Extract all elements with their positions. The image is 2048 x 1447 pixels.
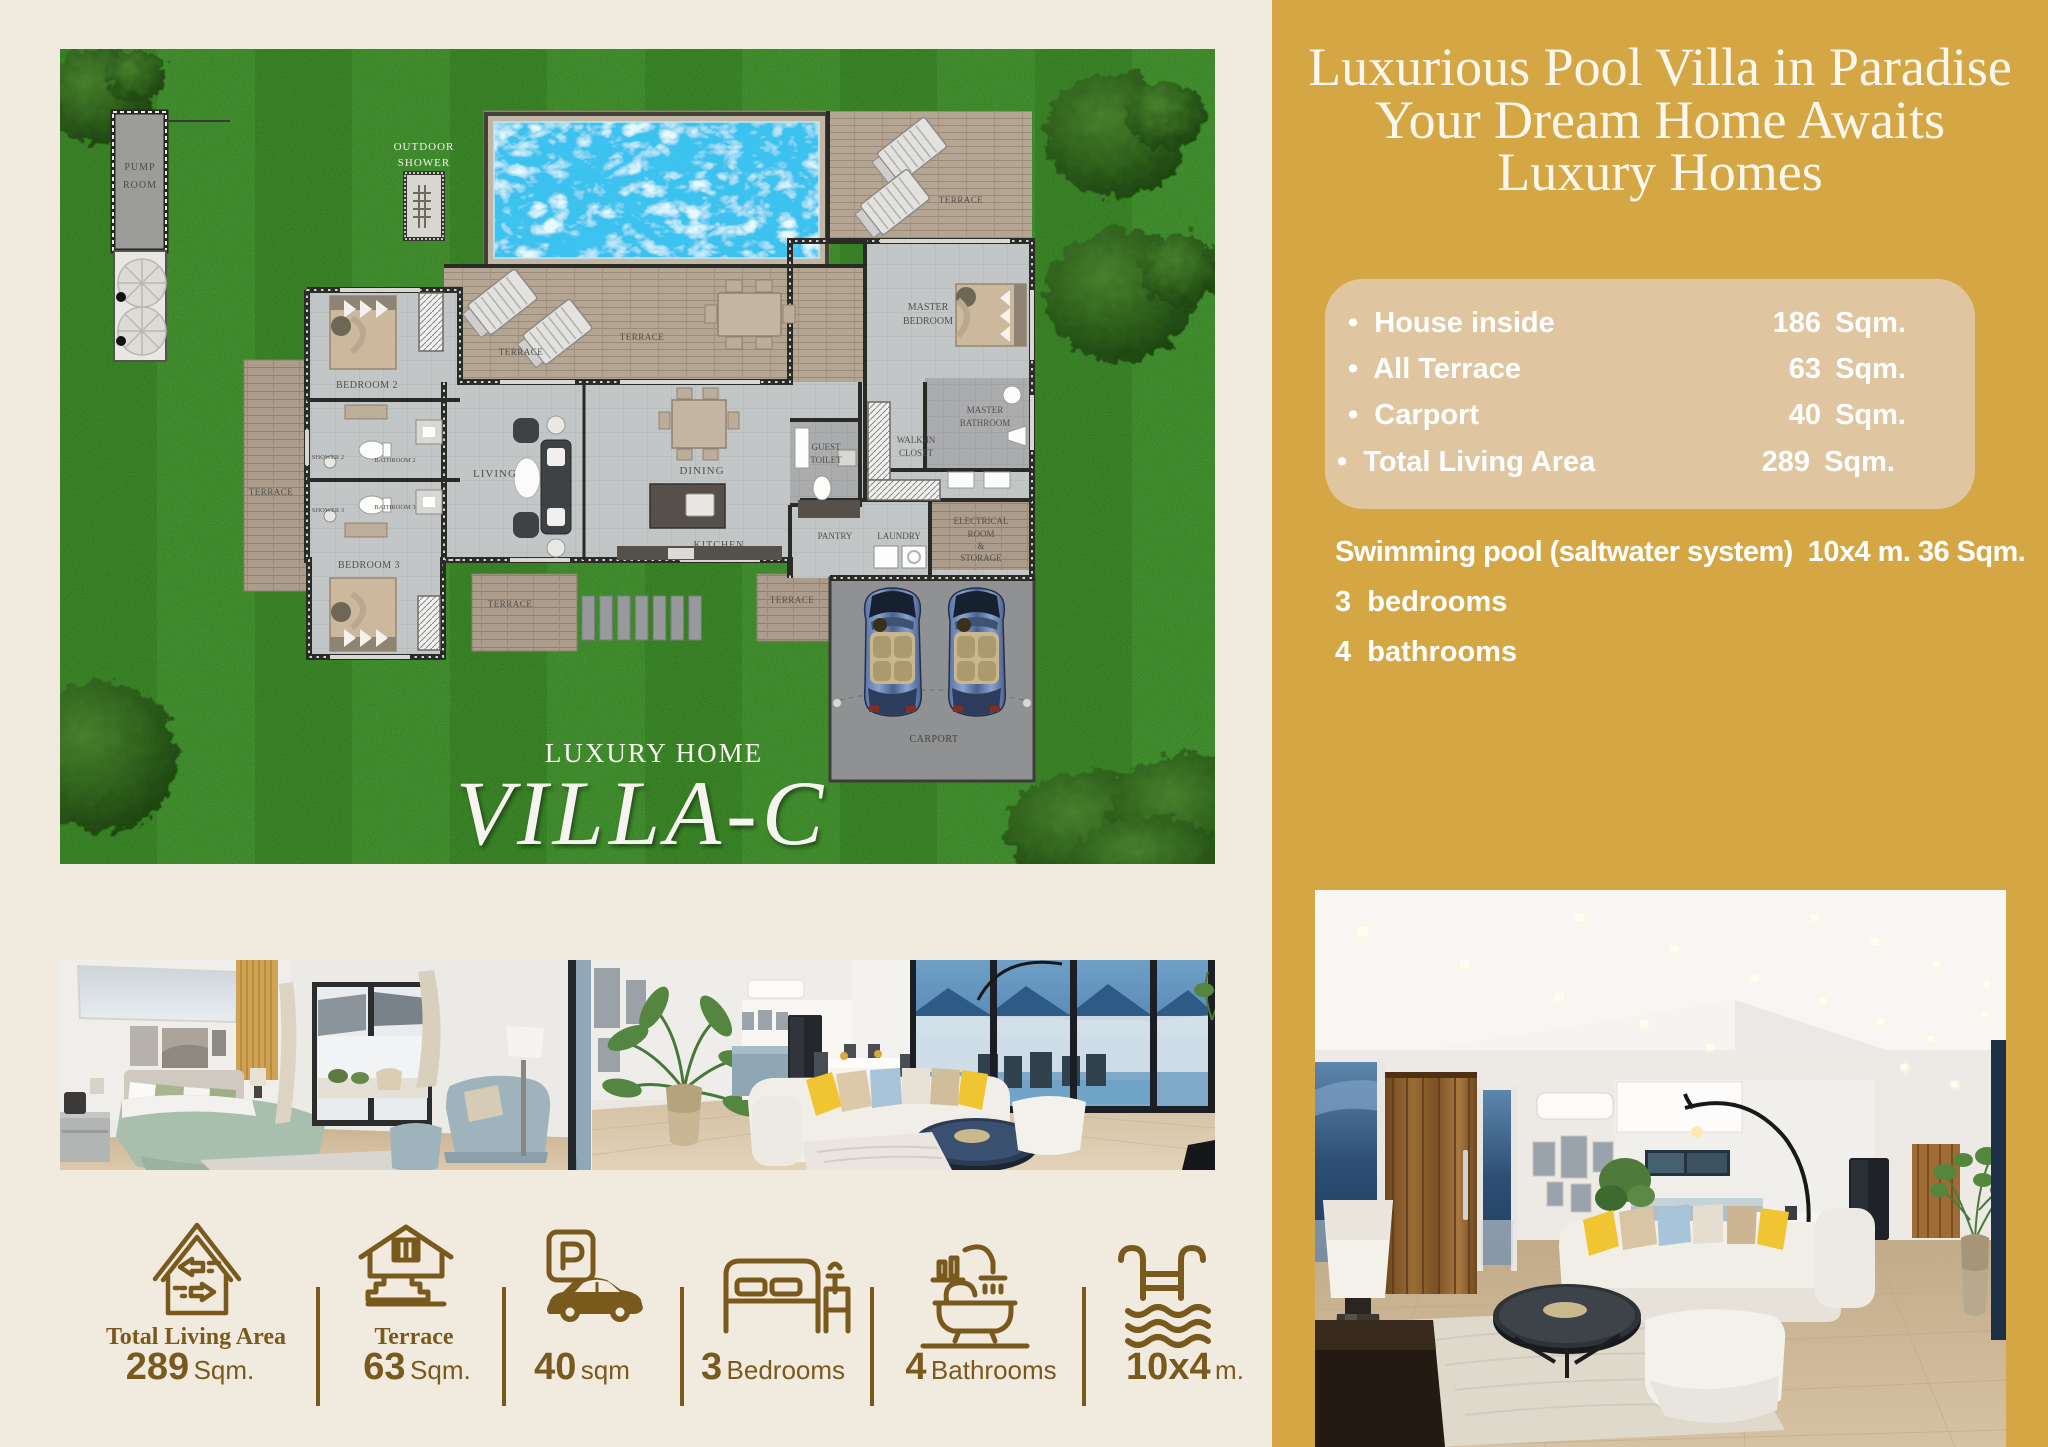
svg-text:TERRACE: TERRACE: [499, 347, 544, 357]
svg-text:KITCHEN: KITCHEN: [694, 540, 745, 551]
svg-text:BATHROOM: BATHROOM: [960, 418, 1011, 428]
svg-text:LAUNDRY: LAUNDRY: [877, 531, 921, 541]
svg-text:ELECTRICAL: ELECTRICAL: [954, 516, 1009, 526]
svg-text:ROOM: ROOM: [967, 529, 994, 539]
svg-text:DINING: DINING: [679, 465, 724, 477]
svg-text:VILLA-C: VILLA-C: [456, 762, 828, 864]
svg-text:TERRACE: TERRACE: [770, 595, 815, 605]
svg-text:STORAGE: STORAGE: [960, 553, 1002, 563]
svg-text:BEDROOM: BEDROOM: [903, 316, 953, 327]
svg-text:WALK-IN: WALK-IN: [897, 435, 936, 445]
svg-text:OUTDOOR: OUTDOOR: [394, 141, 455, 153]
svg-text:TOILET: TOILET: [810, 455, 842, 465]
svg-text:SHOWER 2: SHOWER 2: [312, 454, 344, 461]
svg-text:CARPORT: CARPORT: [909, 734, 958, 745]
svg-text:PUMP: PUMP: [124, 162, 155, 173]
svg-text:GUEST: GUEST: [812, 442, 842, 452]
svg-text:BEDROOM 2: BEDROOM 2: [336, 380, 398, 391]
svg-text:TERRACE: TERRACE: [939, 195, 984, 205]
svg-text:LIVING: LIVING: [473, 468, 517, 480]
svg-text:SHOWER 3: SHOWER 3: [312, 507, 344, 514]
svg-text:CLOSET: CLOSET: [899, 448, 934, 458]
svg-text:BATHROOM 3: BATHROOM 3: [374, 504, 415, 511]
svg-text:PANTRY: PANTRY: [818, 531, 853, 541]
svg-text:TERRACE: TERRACE: [620, 332, 665, 342]
svg-text:TERRACE: TERRACE: [249, 487, 294, 497]
svg-text:TERRACE: TERRACE: [488, 599, 533, 609]
svg-text:MASTER: MASTER: [908, 302, 949, 313]
svg-text:BATHROOM 2: BATHROOM 2: [374, 457, 415, 464]
svg-text:&: &: [977, 541, 984, 551]
svg-text:MASTER: MASTER: [967, 405, 1004, 415]
svg-text:ROOM: ROOM: [123, 180, 157, 191]
svg-text:SHOWER: SHOWER: [398, 157, 450, 169]
svg-text:BEDROOM 3: BEDROOM 3: [338, 560, 400, 571]
